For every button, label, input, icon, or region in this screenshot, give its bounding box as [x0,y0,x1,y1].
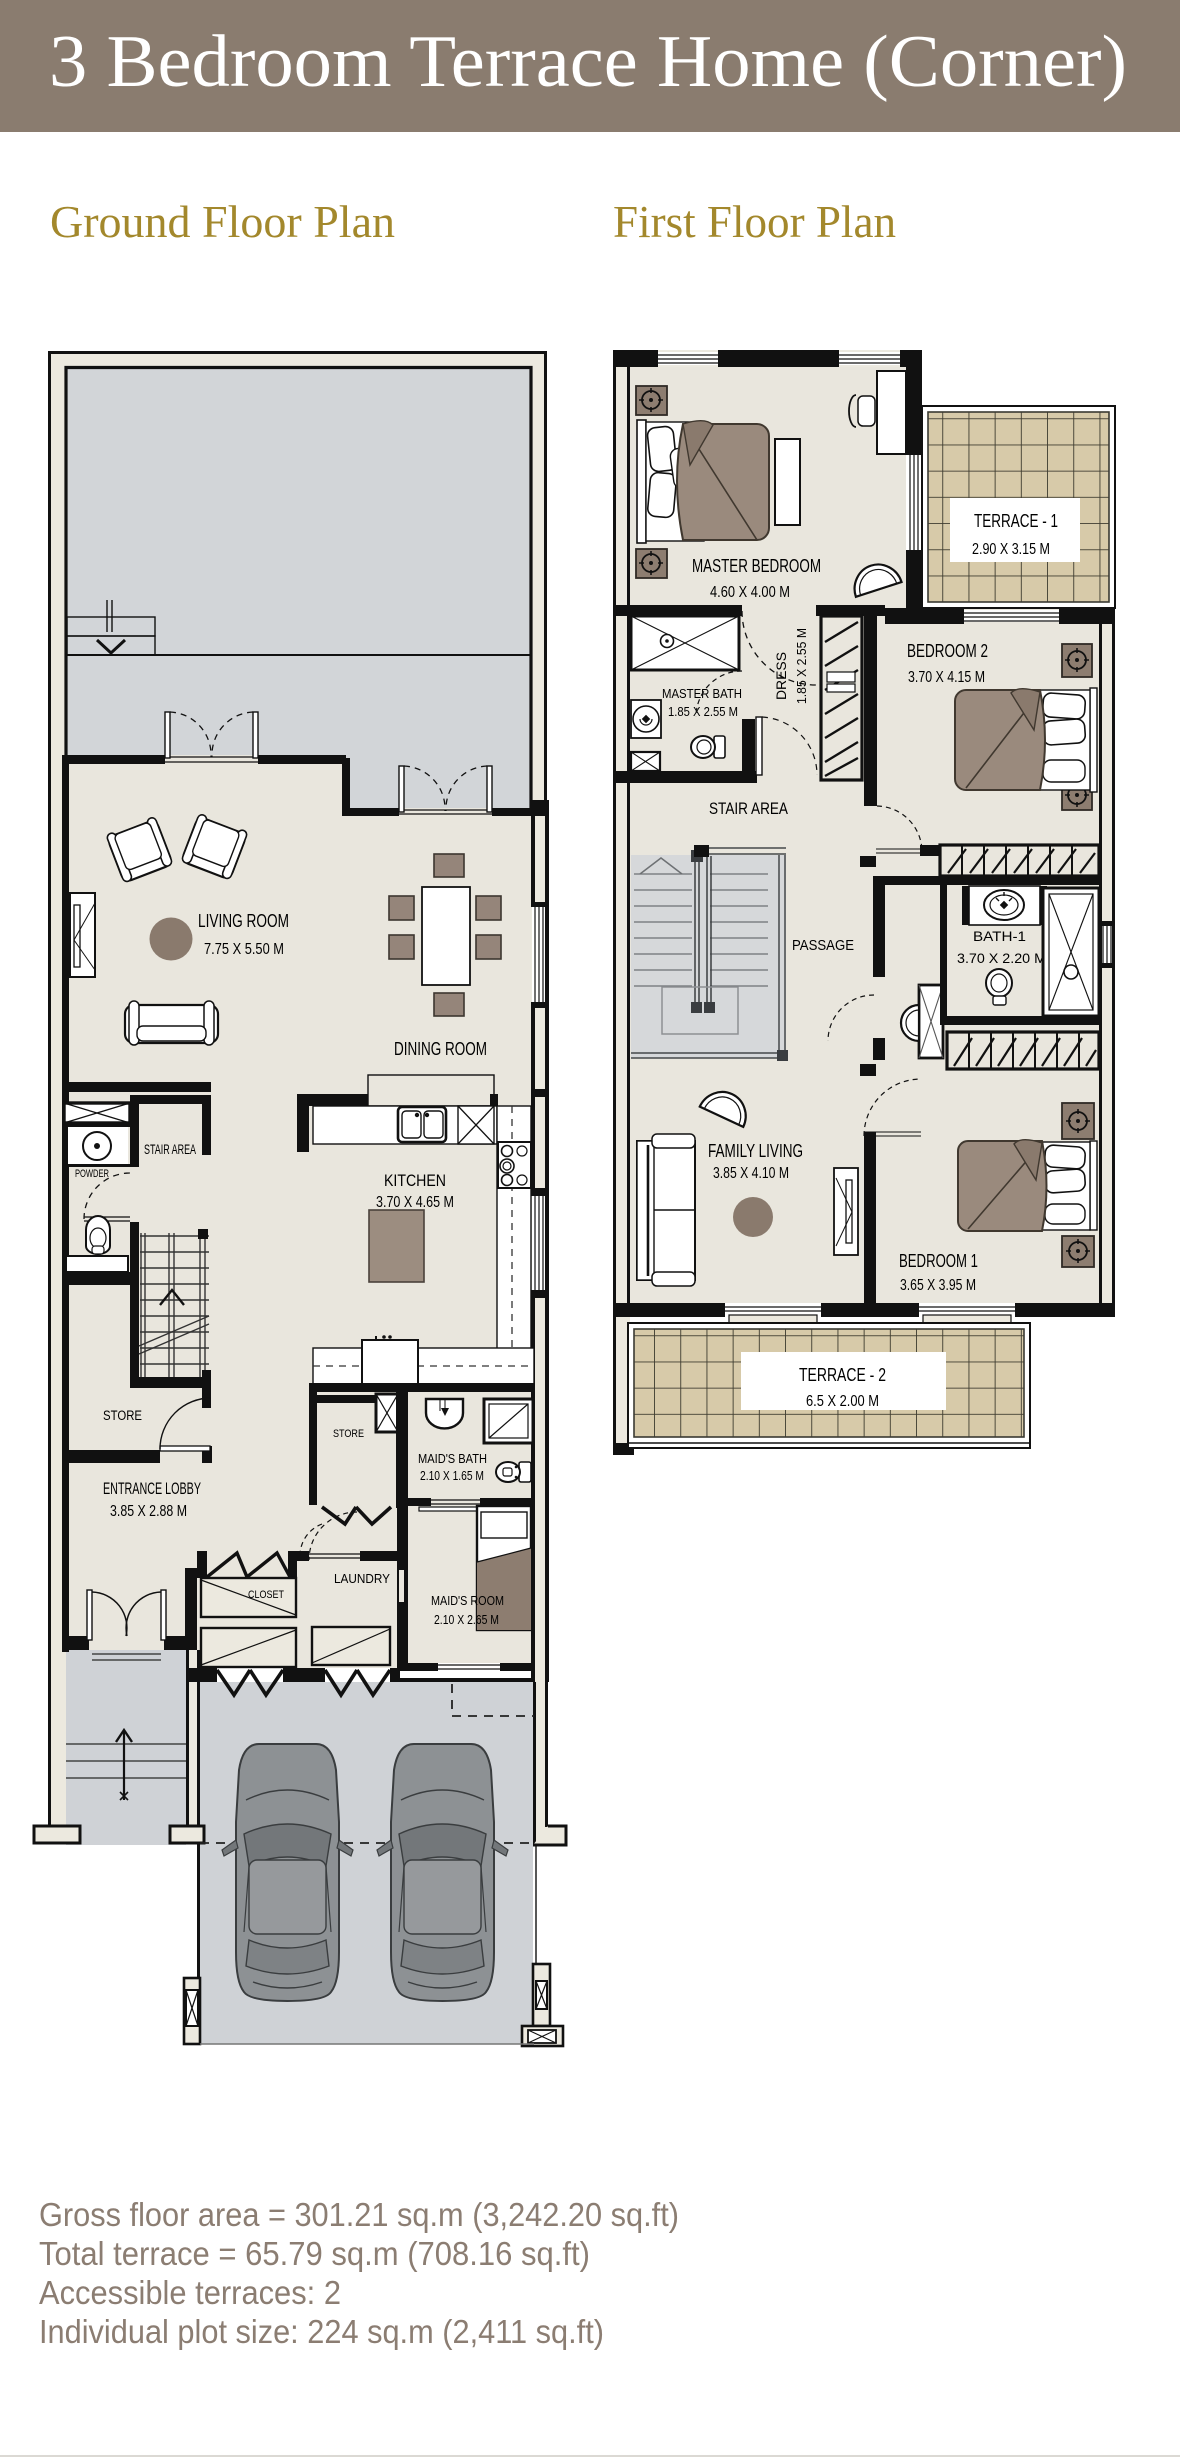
svg-text:3.70 X 4.15 M: 3.70 X 4.15 M [908,669,985,686]
svg-text:BATH-1: BATH-1 [973,928,1026,944]
svg-text:Gross floor area = 301.21 sq.m: Gross floor area = 301.21 sq.m (3,242.20… [39,2197,679,2234]
svg-text:STAIR AREA: STAIR AREA [144,1142,196,1157]
svg-text:POWDER: POWDER [75,1168,109,1180]
svg-text:4.60 X 4.00 M: 4.60 X 4.00 M [710,584,790,601]
svg-text:1.85 X 2.55 M: 1.85 X 2.55 M [795,628,809,704]
svg-text:Accessible terraces: 2: Accessible terraces: 2 [39,2275,341,2312]
svg-text:3.85 X 2.88 M: 3.85 X 2.88 M [110,1503,187,1520]
svg-text:First Floor Plan: First Floor Plan [613,196,896,247]
svg-text:7.75 X 5.50 M: 7.75 X 5.50 M [204,941,284,958]
svg-text:STORE: STORE [333,1428,364,1440]
svg-text:PASSAGE: PASSAGE [792,937,854,954]
svg-text:TERRACE - 1: TERRACE - 1 [974,511,1058,531]
svg-text:2.10 X 1.65 M: 2.10 X 1.65 M [420,1469,484,1483]
svg-text:2.10 X 2.65 M: 2.10 X 2.65 M [434,1613,499,1627]
svg-text:MAID'S BATH: MAID'S BATH [418,1452,487,1466]
svg-text:3.85 X 4.10 M: 3.85 X 4.10 M [713,1165,789,1182]
svg-text:3 Bedroom Terrace Home (Corner: 3 Bedroom Terrace Home (Corner) [49,21,1127,103]
svg-text:LIVING ROOM: LIVING ROOM [198,910,289,931]
svg-text:Ground Floor Plan: Ground Floor Plan [50,196,395,247]
svg-text:BEDROOM 2: BEDROOM 2 [907,640,988,661]
svg-text:STAIR AREA: STAIR AREA [709,799,789,818]
svg-text:3.70 X 2.20 M: 3.70 X 2.20 M [957,950,1046,966]
svg-text:FAMILY LIVING: FAMILY LIVING [708,1140,803,1161]
svg-text:3.70 X 4.65 M: 3.70 X 4.65 M [376,1194,454,1211]
svg-text:STORE: STORE [103,1408,142,1423]
svg-text:CLOSET: CLOSET [248,1589,284,1601]
svg-text:LAUNDRY: LAUNDRY [334,1571,390,1586]
svg-text:6.5 X 2.00 M: 6.5 X 2.00 M [806,1393,879,1410]
svg-text:1.85 X 2.55 M: 1.85 X 2.55 M [668,705,738,719]
svg-text:BEDROOM 1: BEDROOM 1 [899,1251,978,1271]
svg-text:MASTER BEDROOM: MASTER BEDROOM [692,555,821,576]
svg-text:MAID'S ROOM: MAID'S ROOM [431,1594,504,1608]
svg-text:KITCHEN: KITCHEN [384,1171,446,1190]
svg-text:Total terrace = 65.79 sq.m (70: Total terrace = 65.79 sq.m (708.16 sq.ft… [39,2236,590,2273]
svg-text:DRESS: DRESS [774,652,789,700]
svg-text:TERRACE - 2: TERRACE - 2 [799,1365,886,1385]
svg-text:DINING ROOM: DINING ROOM [394,1038,487,1059]
svg-text:Individual plot size: 224 sq.m: Individual plot size: 224 sq.m (2,411 sq… [39,2314,604,2351]
svg-text:3.65 X 3.95 M: 3.65 X 3.95 M [900,1277,976,1294]
svg-text:2.90 X 3.15 M: 2.90 X 3.15 M [972,541,1050,558]
svg-text:ENTRANCE LOBBY: ENTRANCE LOBBY [103,1480,201,1498]
